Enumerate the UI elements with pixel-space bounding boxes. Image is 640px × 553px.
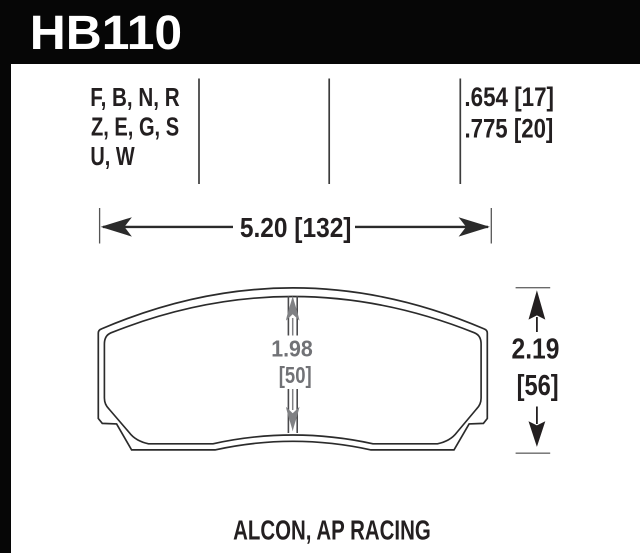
svg-text:[50]: [50] xyxy=(279,362,312,388)
svg-text:HB110: HB110 xyxy=(30,7,182,60)
svg-text:5.20 [132]: 5.20 [132] xyxy=(240,212,352,243)
svg-text:F, B, N, R: F, B, N, R xyxy=(90,84,179,112)
svg-text:.775 [20]: .775 [20] xyxy=(464,112,553,143)
svg-text:Z, E, G, S: Z, E, G, S xyxy=(91,113,179,141)
svg-text:1.98: 1.98 xyxy=(271,336,313,362)
svg-text:.654 [17]: .654 [17] xyxy=(464,81,554,112)
svg-text:U, W: U, W xyxy=(90,143,135,171)
svg-text:2.19: 2.19 xyxy=(512,334,560,366)
svg-text:[56]: [56] xyxy=(517,370,559,402)
svg-text:ALCON, AP RACING: ALCON, AP RACING xyxy=(233,515,431,546)
